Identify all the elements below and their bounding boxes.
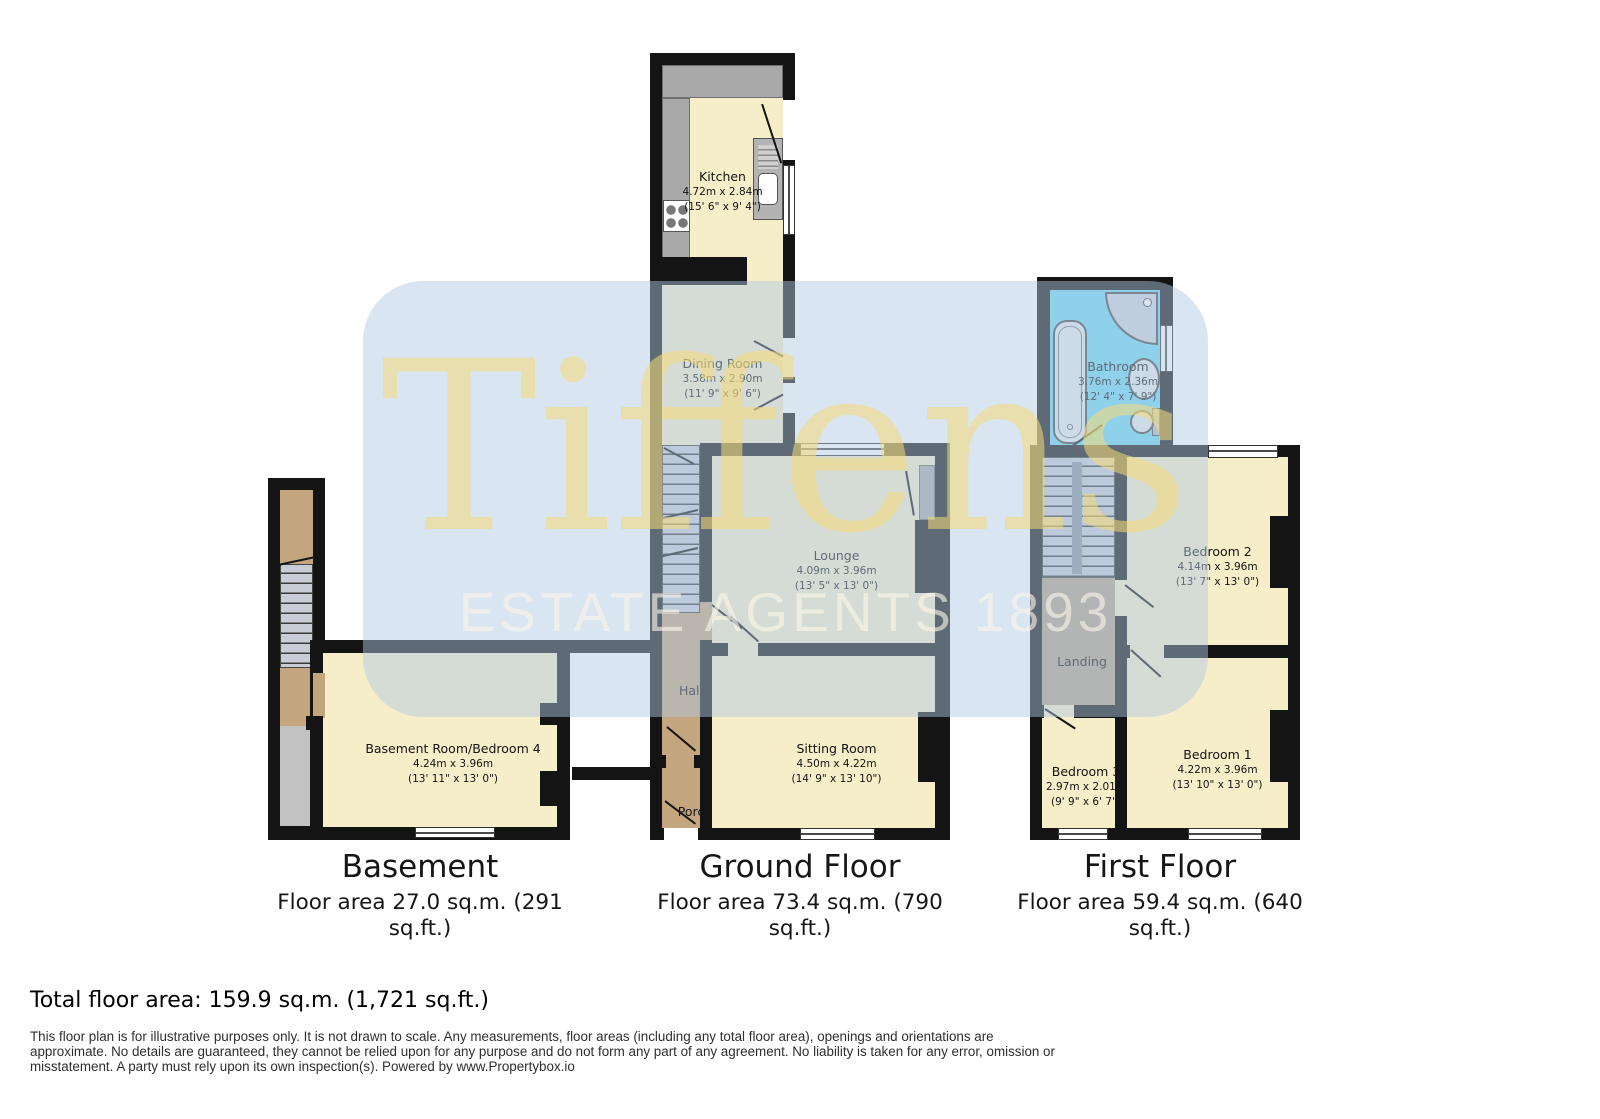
room-name: Sitting Room <box>725 740 948 757</box>
basement-title: Basement <box>260 849 580 885</box>
basement-store-slab <box>280 726 313 826</box>
room-dims-ft: (14' 9" x 13' 10") <box>725 772 948 787</box>
basement-wall-notch <box>306 716 323 730</box>
toilet-icon <box>1130 410 1154 434</box>
basement-corridor-room-opening <box>313 673 325 718</box>
basement-room-label: Basement Room/Bedroom 4 4.24m x 3.96m (1… <box>336 740 570 787</box>
first-title: First Floor <box>1000 849 1320 885</box>
room-dims-m: 3.58m x 2.90m <box>662 372 783 387</box>
basement-chimney-breast-1 <box>540 703 557 725</box>
bedroom2-label: Bedroom 2 4.14m x 3.96m (13' 7" x 13' 0"… <box>1137 543 1298 590</box>
link-wall-top <box>550 640 662 653</box>
room-name: Dining Room <box>662 355 783 372</box>
room-dims-ft: (12' 4" x 7' 9") <box>1050 390 1186 405</box>
room-dims-ft: (9' 9" x 6' 7") <box>1038 795 1134 810</box>
room-dims-m: 4.50m x 4.22m <box>725 757 948 772</box>
room-dims-m: 4.22m x 3.96m <box>1137 763 1298 778</box>
first-area: Floor area 59.4 sq.m. (640 sq.ft.) <box>1002 890 1318 942</box>
dining-door-opening-1 <box>783 338 795 377</box>
room-name: Lounge <box>725 547 948 564</box>
room-name: Bathroom <box>1050 358 1186 375</box>
kitchen-dining-divider <box>658 257 747 285</box>
room-name: Basement Room/Bedroom 4 <box>336 740 570 757</box>
bedroom3-window <box>1058 828 1108 840</box>
room-dims-ft: (13' 7" x 13' 0") <box>1137 575 1298 590</box>
first-stairs-rail <box>1072 462 1082 574</box>
bedroom1-label: Bedroom 1 4.22m x 3.96m (13' 10" x 13' 0… <box>1137 746 1298 793</box>
hall-lounge-door-opening <box>700 602 712 640</box>
room-dims-m: 4.24m x 3.96m <box>336 757 570 772</box>
first-floorplan: Bathroom 3.76m x 2.36m (12' 4" x 7' 9") … <box>1030 272 1300 840</box>
room-dims-m: 4.72m x 2.84m <box>662 185 783 200</box>
ground-title: Ground Floor <box>640 849 960 885</box>
total-floor-area: Total floor area: 159.9 sq.m. (1,721 sq.… <box>30 988 489 1013</box>
room-name: Bedroom 3 <box>1038 763 1134 780</box>
ground-left-wall <box>650 445 662 840</box>
dining-label: Dining Room 3.58m x 2.90m (11' 9" x 9' 6… <box>662 355 783 402</box>
lounge-label: Lounge 4.09m x 3.96m (13' 5" x 13' 0") <box>725 547 948 594</box>
room-dims-m: 4.09m x 3.96m <box>725 564 948 579</box>
basement-area: Floor area 27.0 sq.m. (291 sq.ft.) <box>262 890 578 942</box>
room-name: Kitchen <box>662 168 783 185</box>
landing-label: Landing <box>1042 653 1122 670</box>
bath-drain-icon <box>1067 424 1073 430</box>
sitting-label: Sitting Room 4.50m x 4.22m (14' 9" x 13'… <box>725 740 948 787</box>
ground-stairs <box>662 445 700 613</box>
kitchen-label: Kitchen 4.72m x 2.84m (15' 6" x 9' 4") <box>662 168 783 215</box>
basement-corridor-top <box>280 490 313 564</box>
room-dims-ft: (13' 11" x 13' 0") <box>336 772 570 787</box>
room-dims-m: 3.76m x 2.36m <box>1050 375 1186 390</box>
bedroom3-label: Bedroom 3 2.97m x 2.01m (9' 9" x 6' 7") <box>1038 763 1134 810</box>
sitting-door-opening <box>728 643 758 656</box>
front-door-opening <box>664 828 698 840</box>
room-name: Bedroom 2 <box>1137 543 1298 560</box>
kitchen-counter-top <box>662 65 783 98</box>
ground-area: Floor area 73.4 sq.m. (790 sq.ft.) <box>642 890 958 942</box>
lounge-side-recess <box>919 465 935 520</box>
disclaimer-text: This floor plan is for illustrative purp… <box>30 1029 1150 1075</box>
ground-floorplan: Kitchen 4.72m x 2.84m (15' 6" x 9' 4") D… <box>650 53 950 840</box>
basement-floorplan: Basement Room/Bedroom 4 4.24m x 3.96m (1… <box>268 478 570 840</box>
landing-floor <box>1042 578 1115 705</box>
room-dims-ft: (13' 10" x 13' 0") <box>1137 778 1298 793</box>
link-wall-bottom <box>572 767 662 780</box>
room-dims-ft: (11' 9" x 9' 6") <box>662 387 783 402</box>
basement-window <box>415 827 495 838</box>
room-name: Bedroom 1 <box>1137 746 1298 763</box>
room-dims-ft: (13' 5" x 13' 0") <box>725 579 948 594</box>
lounge-window <box>800 443 885 456</box>
kitchen-window <box>783 165 795 235</box>
dining-door-opening-2 <box>783 383 795 413</box>
kitchen-door-opening <box>783 100 795 160</box>
bathroom-label: Bathroom 3.76m x 2.36m (12' 4" x 7' 9") <box>1050 358 1186 405</box>
bedroom1-window <box>1188 828 1262 840</box>
shower-head-icon <box>1143 298 1152 307</box>
room-dims-m: 2.97m x 2.01m <box>1038 780 1134 795</box>
sitting-window <box>800 828 875 840</box>
room-dims-m: 4.14m x 3.96m <box>1137 560 1298 575</box>
hall-porch-door-opening <box>666 755 694 768</box>
bedroom1-floor <box>1127 658 1288 828</box>
basement-stairs <box>280 564 313 668</box>
room-dims-ft: (15' 6" x 9' 4") <box>662 200 783 215</box>
bedroom2-window <box>1208 445 1278 458</box>
